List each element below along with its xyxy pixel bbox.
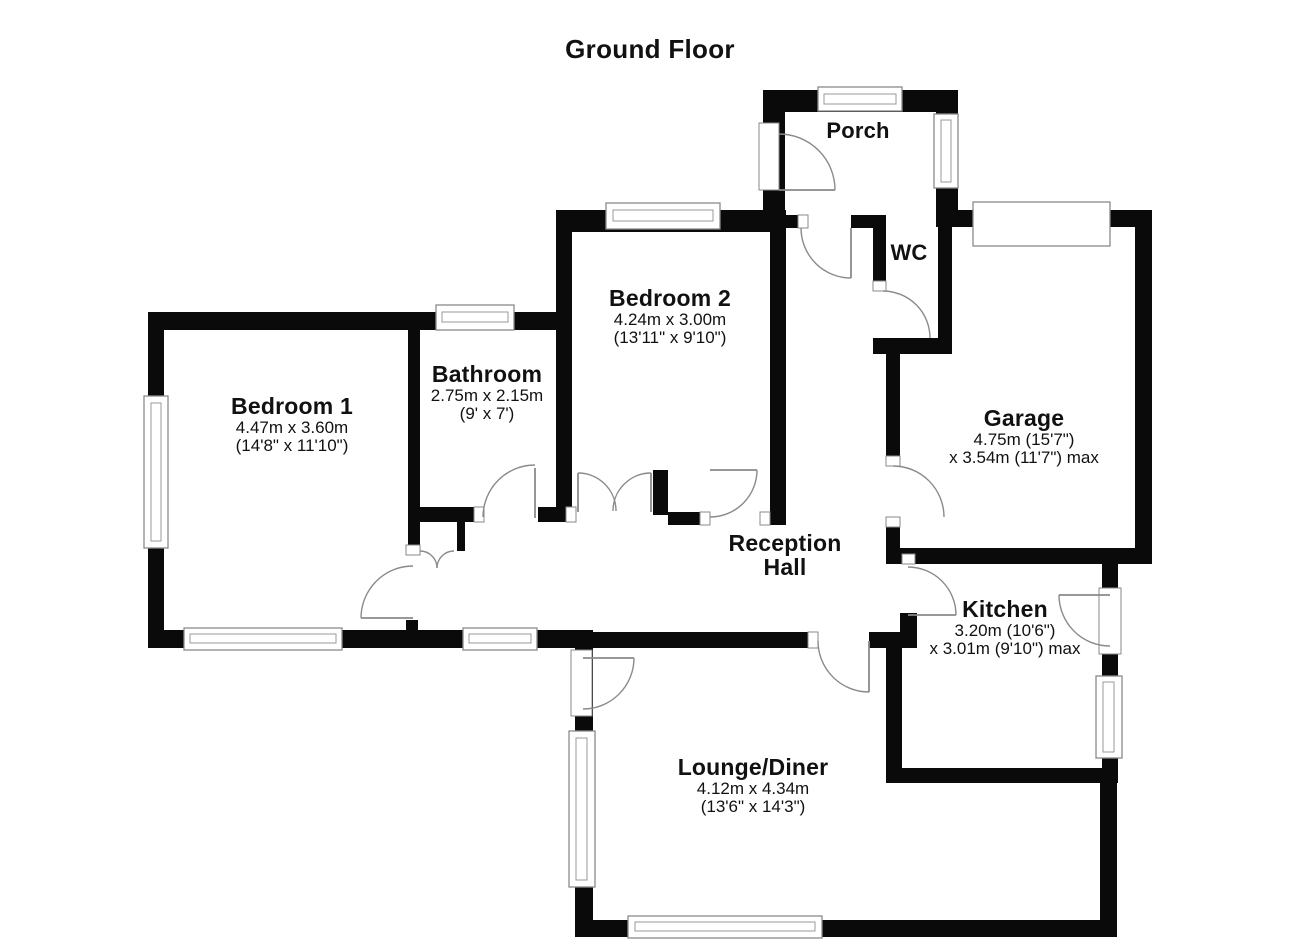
room-name: Kitchen (930, 598, 1081, 622)
room-area-lounge-diner (593, 648, 1100, 920)
window-lounge-bottom (628, 916, 822, 938)
window-kitchen-right (1096, 676, 1122, 758)
room-name: Bathroom (431, 363, 543, 387)
floorplan: Ground Floor Porch WC Bedroom 2 4.24m x … (0, 0, 1300, 945)
room-name: Lounge/Diner (678, 756, 829, 780)
room-dims-imperial: x 3.01m (9'10") max (930, 640, 1081, 658)
garage-door (973, 202, 1110, 246)
window-hall-bottom (463, 628, 537, 650)
room-label-kitchen: Kitchen 3.20m (10'6") x 3.01m (9'10") ma… (930, 598, 1081, 658)
room-label-wc: WC (890, 242, 927, 265)
room-dims-metric: 4.47m x 3.60m (231, 419, 353, 437)
room-area-bedroom2 (572, 232, 770, 507)
room-dims-imperial: (13'11" x 9'10") (609, 329, 731, 347)
window-bedroom1-left (144, 396, 168, 548)
room-label-porch: Porch (826, 120, 889, 143)
window-lounge-left (569, 731, 595, 887)
room-name-line1: Reception (729, 532, 842, 556)
window-bedroom1-bottom (184, 628, 342, 650)
room-name: Porch (826, 120, 889, 143)
door-porch-hall (798, 215, 851, 278)
room-name: WC (890, 242, 927, 265)
floorplan-svg (0, 0, 1300, 945)
room-dims-metric: 2.75m x 2.15m (431, 387, 543, 405)
room-dims-metric: 4.12m x 4.34m (678, 780, 829, 798)
room-dims-imperial: (9' x 7') (431, 405, 543, 423)
room-dims-imperial: (14'8" x 11'10") (231, 437, 353, 455)
room-area-bedroom1 (164, 330, 408, 630)
room-dims-metric: 4.24m x 3.00m (609, 311, 731, 329)
room-label-bedroom1: Bedroom 1 4.47m x 3.60m (14'8" x 11'10") (231, 395, 353, 455)
window-porch-top (818, 87, 902, 111)
room-label-lounge-diner: Lounge/Diner 4.12m x 4.34m (13'6" x 14'3… (678, 756, 829, 816)
room-area-garage (900, 227, 1135, 548)
room-dims-metric: 4.75m (15'7") (949, 431, 1099, 449)
room-dims-imperial: x 3.54m (11'7") max (949, 449, 1099, 467)
page-title: Ground Floor (565, 34, 735, 65)
room-label-garage: Garage 4.75m (15'7") x 3.54m (11'7") max (949, 407, 1099, 467)
window-bedroom2-top (606, 203, 720, 229)
room-label-reception-hall: Reception Hall (729, 532, 842, 580)
window-porch-right (934, 114, 958, 188)
room-label-bedroom2: Bedroom 2 4.24m x 3.00m (13'11" x 9'10") (609, 287, 731, 347)
room-name-line2: Hall (729, 556, 842, 580)
room-dims-imperial: (13'6" x 14'3") (678, 798, 829, 816)
room-name: Bedroom 2 (609, 287, 731, 311)
room-dims-metric: 3.20m (10'6") (930, 622, 1081, 640)
room-name: Garage (949, 407, 1099, 431)
room-name: Bedroom 1 (231, 395, 353, 419)
room-label-bathroom: Bathroom 2.75m x 2.15m (9' x 7') (431, 363, 543, 423)
window-bathroom-top (436, 305, 514, 330)
